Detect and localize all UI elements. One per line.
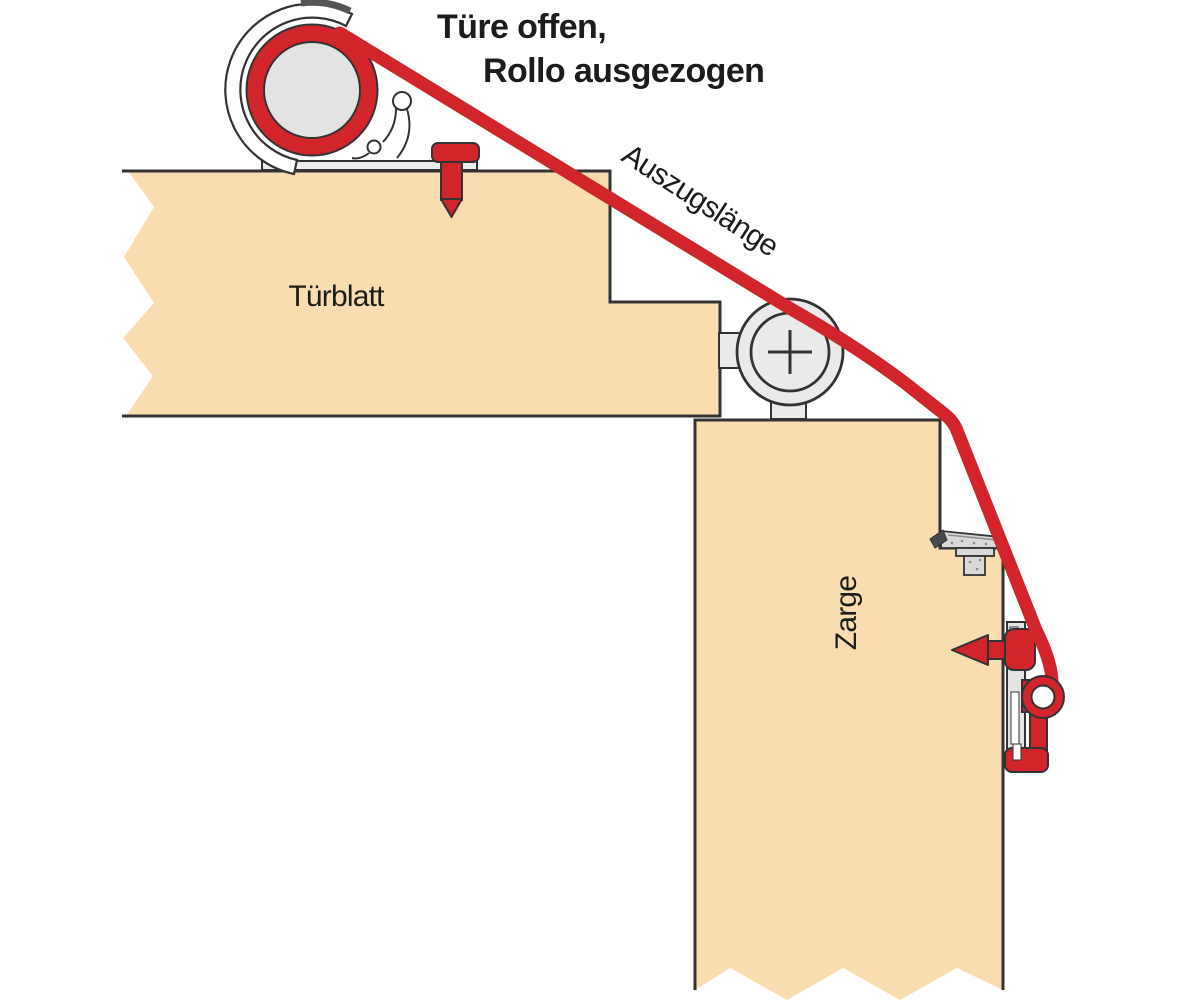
headline-line2: Rollo ausgezogen bbox=[483, 52, 764, 91]
bracket-foot bbox=[1005, 748, 1048, 772]
door-frame-shape bbox=[695, 420, 1003, 1000]
diagram-stage: Türe offen, Rollo ausgezogen Auszugsläng… bbox=[0, 0, 1200, 1000]
bracket-cap bbox=[1005, 629, 1035, 670]
diagram-canvas bbox=[0, 0, 1200, 1000]
housing-curl-knob bbox=[393, 92, 411, 110]
door-frame-label: Zarge bbox=[830, 576, 864, 650]
band-hook-knob bbox=[1022, 676, 1064, 718]
headline-line1: Türe offen, bbox=[437, 8, 606, 47]
roller-core bbox=[265, 43, 359, 137]
door-leaf-label: Türblatt bbox=[288, 280, 383, 314]
housing-curl-knob-small bbox=[368, 141, 381, 154]
deflection-pulley bbox=[719, 299, 843, 419]
